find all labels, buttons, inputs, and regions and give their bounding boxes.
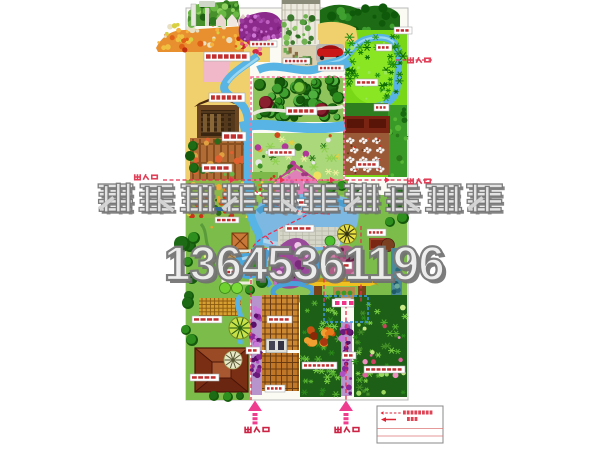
svg-text:13645361196: 13645361196 (164, 238, 444, 291)
